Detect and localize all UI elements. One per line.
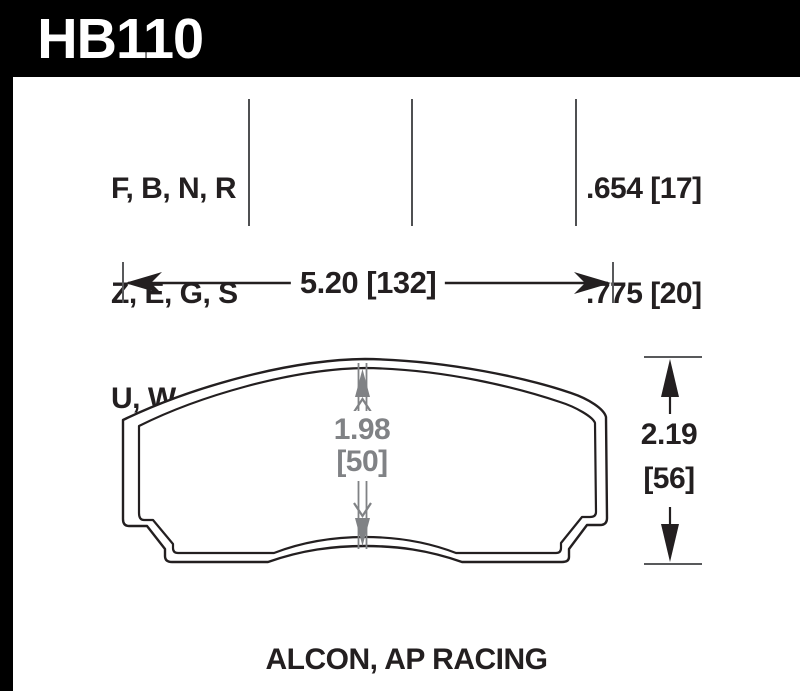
arrowhead-down-icon xyxy=(661,524,679,562)
center-dim-label: 1.98 [50] xyxy=(326,411,398,481)
arrowhead-up-icon xyxy=(661,359,679,397)
height-dim-mm: [56] xyxy=(641,464,697,494)
center-dim-mm: [50] xyxy=(334,446,390,478)
applications-label: ALCON, AP RACING xyxy=(13,643,800,677)
pad-drawing xyxy=(0,0,800,691)
center-dim-inches: 1.98 xyxy=(334,414,390,446)
height-dim-inches: 2.19 xyxy=(641,420,697,450)
height-dim-label: 2.19 [56] xyxy=(641,420,697,494)
width-dim-label: 5.20 [132] xyxy=(291,266,445,300)
